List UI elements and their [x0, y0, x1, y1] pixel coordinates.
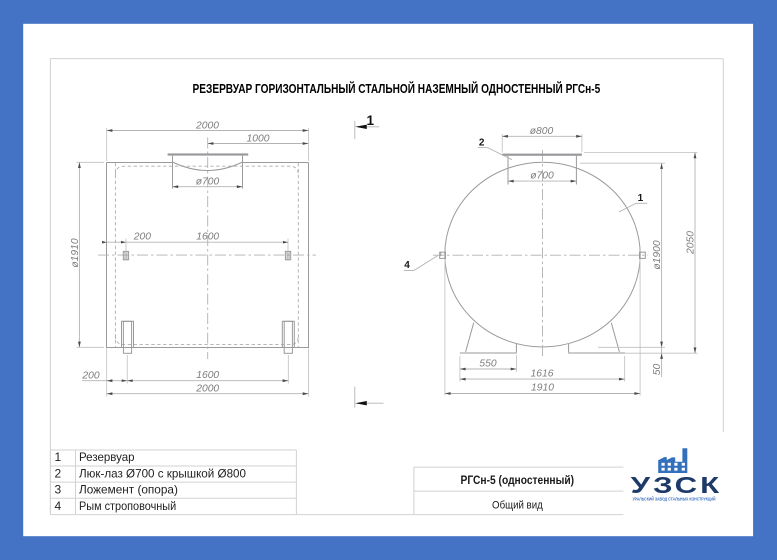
svg-text:1: 1 — [367, 113, 375, 128]
svg-text:2: 2 — [479, 138, 485, 149]
svg-text:Рым строповочный: Рым строповочный — [79, 499, 176, 513]
svg-text:1: 1 — [638, 193, 644, 204]
svg-text:2000: 2000 — [195, 383, 219, 394]
svg-text:4: 4 — [54, 499, 61, 513]
svg-text:2000: 2000 — [195, 120, 219, 131]
svg-text:2050: 2050 — [685, 231, 696, 255]
svg-text:УРАЛЬСКИЙ ЗАВОД СТАЛЬНЫХ КОНСТ: УРАЛЬСКИЙ ЗАВОД СТАЛЬНЫХ КОНСТРУКЦИЙ — [633, 496, 716, 501]
svg-text:1: 1 — [54, 450, 61, 464]
svg-text:200: 200 — [81, 370, 99, 381]
svg-text:ø1910: ø1910 — [70, 238, 81, 267]
svg-text:1600: 1600 — [196, 232, 219, 243]
svg-text:РЕЗЕРВУАР ГОРИЗОНТАЛЬНЫЙ СТАЛЬ: РЕЗЕРВУАР ГОРИЗОНТАЛЬНЫЙ СТАЛЬНОЙ НАЗЕМН… — [193, 81, 601, 96]
svg-text:РГСн-5 (одностенный): РГСн-5 (одностенный) — [461, 473, 575, 487]
svg-text:ø700: ø700 — [530, 170, 554, 181]
svg-text:1600: 1600 — [196, 370, 219, 381]
svg-text:2: 2 — [54, 466, 61, 480]
svg-text:1000: 1000 — [247, 133, 270, 144]
svg-text:4: 4 — [404, 260, 410, 271]
svg-text:Ложемент (опора): Ложемент (опора) — [79, 483, 178, 497]
svg-text:550: 550 — [479, 358, 496, 369]
svg-text:ø700: ø700 — [196, 176, 220, 187]
svg-text:ø1900: ø1900 — [652, 240, 663, 269]
svg-text:Общий вид: Общий вид — [492, 499, 543, 511]
svg-text:УЗСК: УЗСК — [631, 472, 723, 498]
svg-text:1616: 1616 — [531, 368, 554, 379]
svg-text:Резервуар: Резервуар — [79, 450, 135, 464]
svg-text:Люк-лаз Ø700 с крышкой Ø800: Люк-лаз Ø700 с крышкой Ø800 — [79, 466, 246, 480]
svg-text:ø800: ø800 — [530, 126, 554, 137]
svg-text:50: 50 — [652, 364, 663, 376]
svg-text:3: 3 — [54, 483, 61, 497]
svg-text:200: 200 — [133, 232, 151, 243]
svg-text:1910: 1910 — [531, 383, 554, 394]
